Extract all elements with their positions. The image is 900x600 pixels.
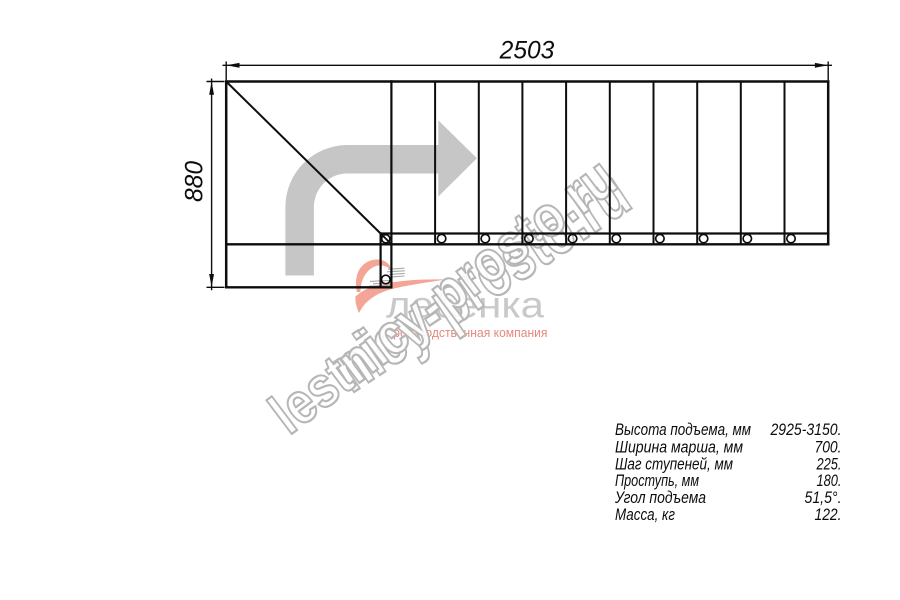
svg-text:2925-3150.: 2925-3150. [770,421,842,439]
svg-text:180.: 180. [817,472,842,490]
svg-text:Проступь, мм: Проступь, мм [615,472,699,490]
svg-text:Шаг ступеней, мм: Шаг ступеней, мм [615,455,733,473]
svg-text:700.: 700. [815,438,842,456]
svg-text:2503: 2503 [499,38,555,65]
svg-text:Угол подъема: Угол подъема [614,489,706,507]
svg-text:880: 880 [182,161,209,202]
svg-text:Высота подъема, мм: Высота подъема, мм [615,421,751,439]
svg-text:122.: 122. [815,506,842,524]
svg-text:Ширина марша, мм: Ширина марша, мм [615,438,743,456]
svg-text:Масса, кг: Масса, кг [615,506,675,524]
svg-text:51,5°.: 51,5°. [805,489,842,507]
svg-text:225.: 225. [816,455,842,473]
